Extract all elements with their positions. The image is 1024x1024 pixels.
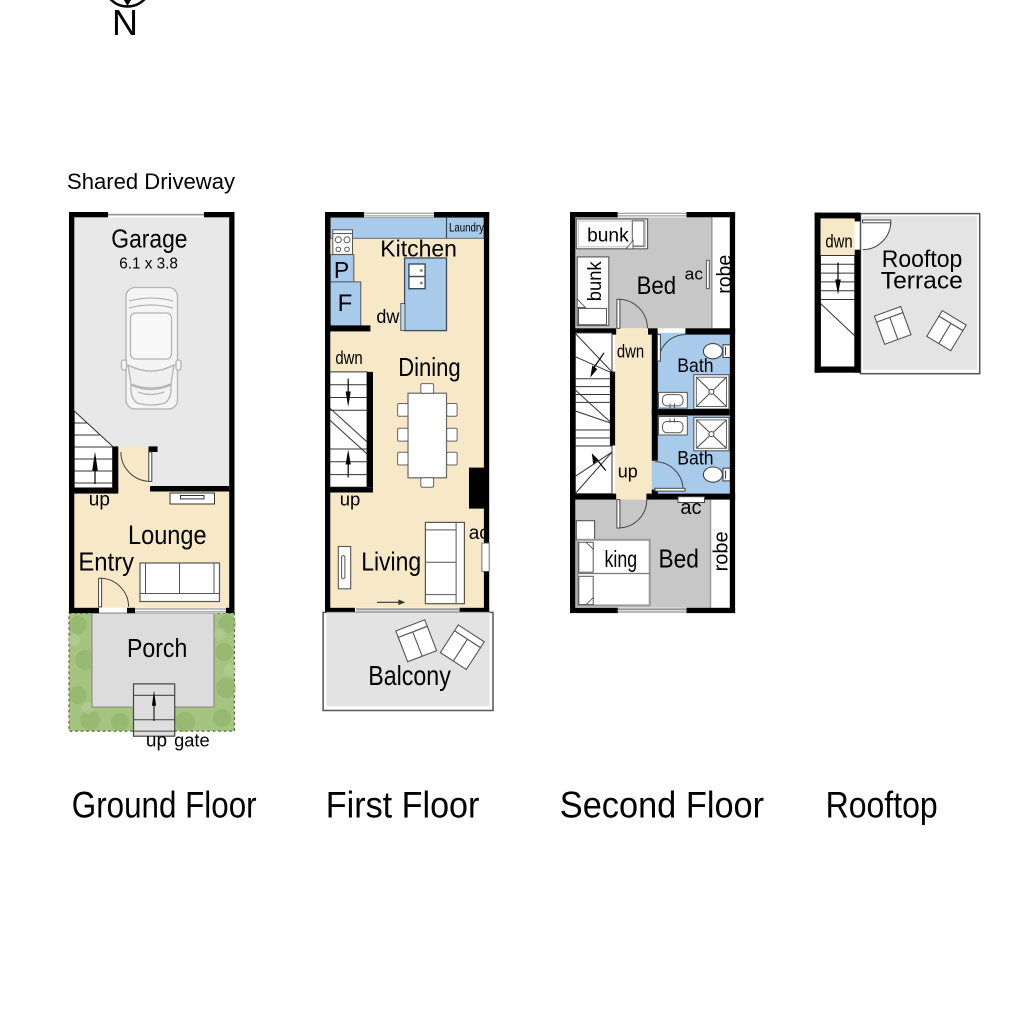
- svg-text:up: up: [146, 731, 167, 752]
- svg-text:Balcony: Balcony: [368, 660, 451, 691]
- svg-text:king: king: [605, 546, 638, 572]
- svg-text:up: up: [618, 462, 638, 482]
- svg-text:Laundry: Laundry: [449, 221, 485, 235]
- svg-text:Entry: Entry: [78, 547, 134, 577]
- svg-text:P: P: [334, 257, 349, 283]
- svg-text:up: up: [340, 489, 361, 510]
- svg-text:Porch: Porch: [127, 635, 187, 663]
- svg-text:gate: gate: [174, 731, 210, 751]
- svg-text:6.1 x 3.8: 6.1 x 3.8: [119, 255, 178, 272]
- svg-text:bunk: bunk: [587, 224, 629, 246]
- svg-text:dwn: dwn: [825, 232, 852, 252]
- svg-text:dw: dw: [376, 306, 400, 328]
- svg-text:Terrace: Terrace: [881, 267, 963, 294]
- svg-text:Rooftop: Rooftop: [826, 785, 938, 826]
- svg-text:ac: ac: [680, 497, 701, 519]
- svg-text:Shared Driveway: Shared Driveway: [67, 169, 235, 194]
- svg-text:Lounge: Lounge: [128, 520, 207, 550]
- svg-text:Garage: Garage: [111, 224, 187, 254]
- svg-text:dwn: dwn: [335, 348, 362, 368]
- svg-text:robe: robe: [711, 531, 733, 571]
- svg-text:dwn: dwn: [617, 342, 644, 362]
- svg-text:Bed: Bed: [637, 272, 677, 300]
- svg-text:First Floor: First Floor: [326, 785, 480, 826]
- svg-text:Bath: Bath: [677, 355, 713, 377]
- svg-text:F: F: [338, 290, 353, 317]
- svg-text:Living: Living: [361, 548, 421, 576]
- svg-text:Second Floor: Second Floor: [560, 785, 764, 826]
- svg-text:N: N: [112, 2, 138, 43]
- svg-text:Dining: Dining: [398, 352, 461, 382]
- svg-text:Ground Floor: Ground Floor: [72, 785, 257, 826]
- svg-text:Bed: Bed: [659, 544, 699, 574]
- svg-text:ac: ac: [685, 264, 704, 283]
- svg-text:bunk: bunk: [584, 261, 606, 301]
- svg-text:Bath: Bath: [677, 447, 713, 469]
